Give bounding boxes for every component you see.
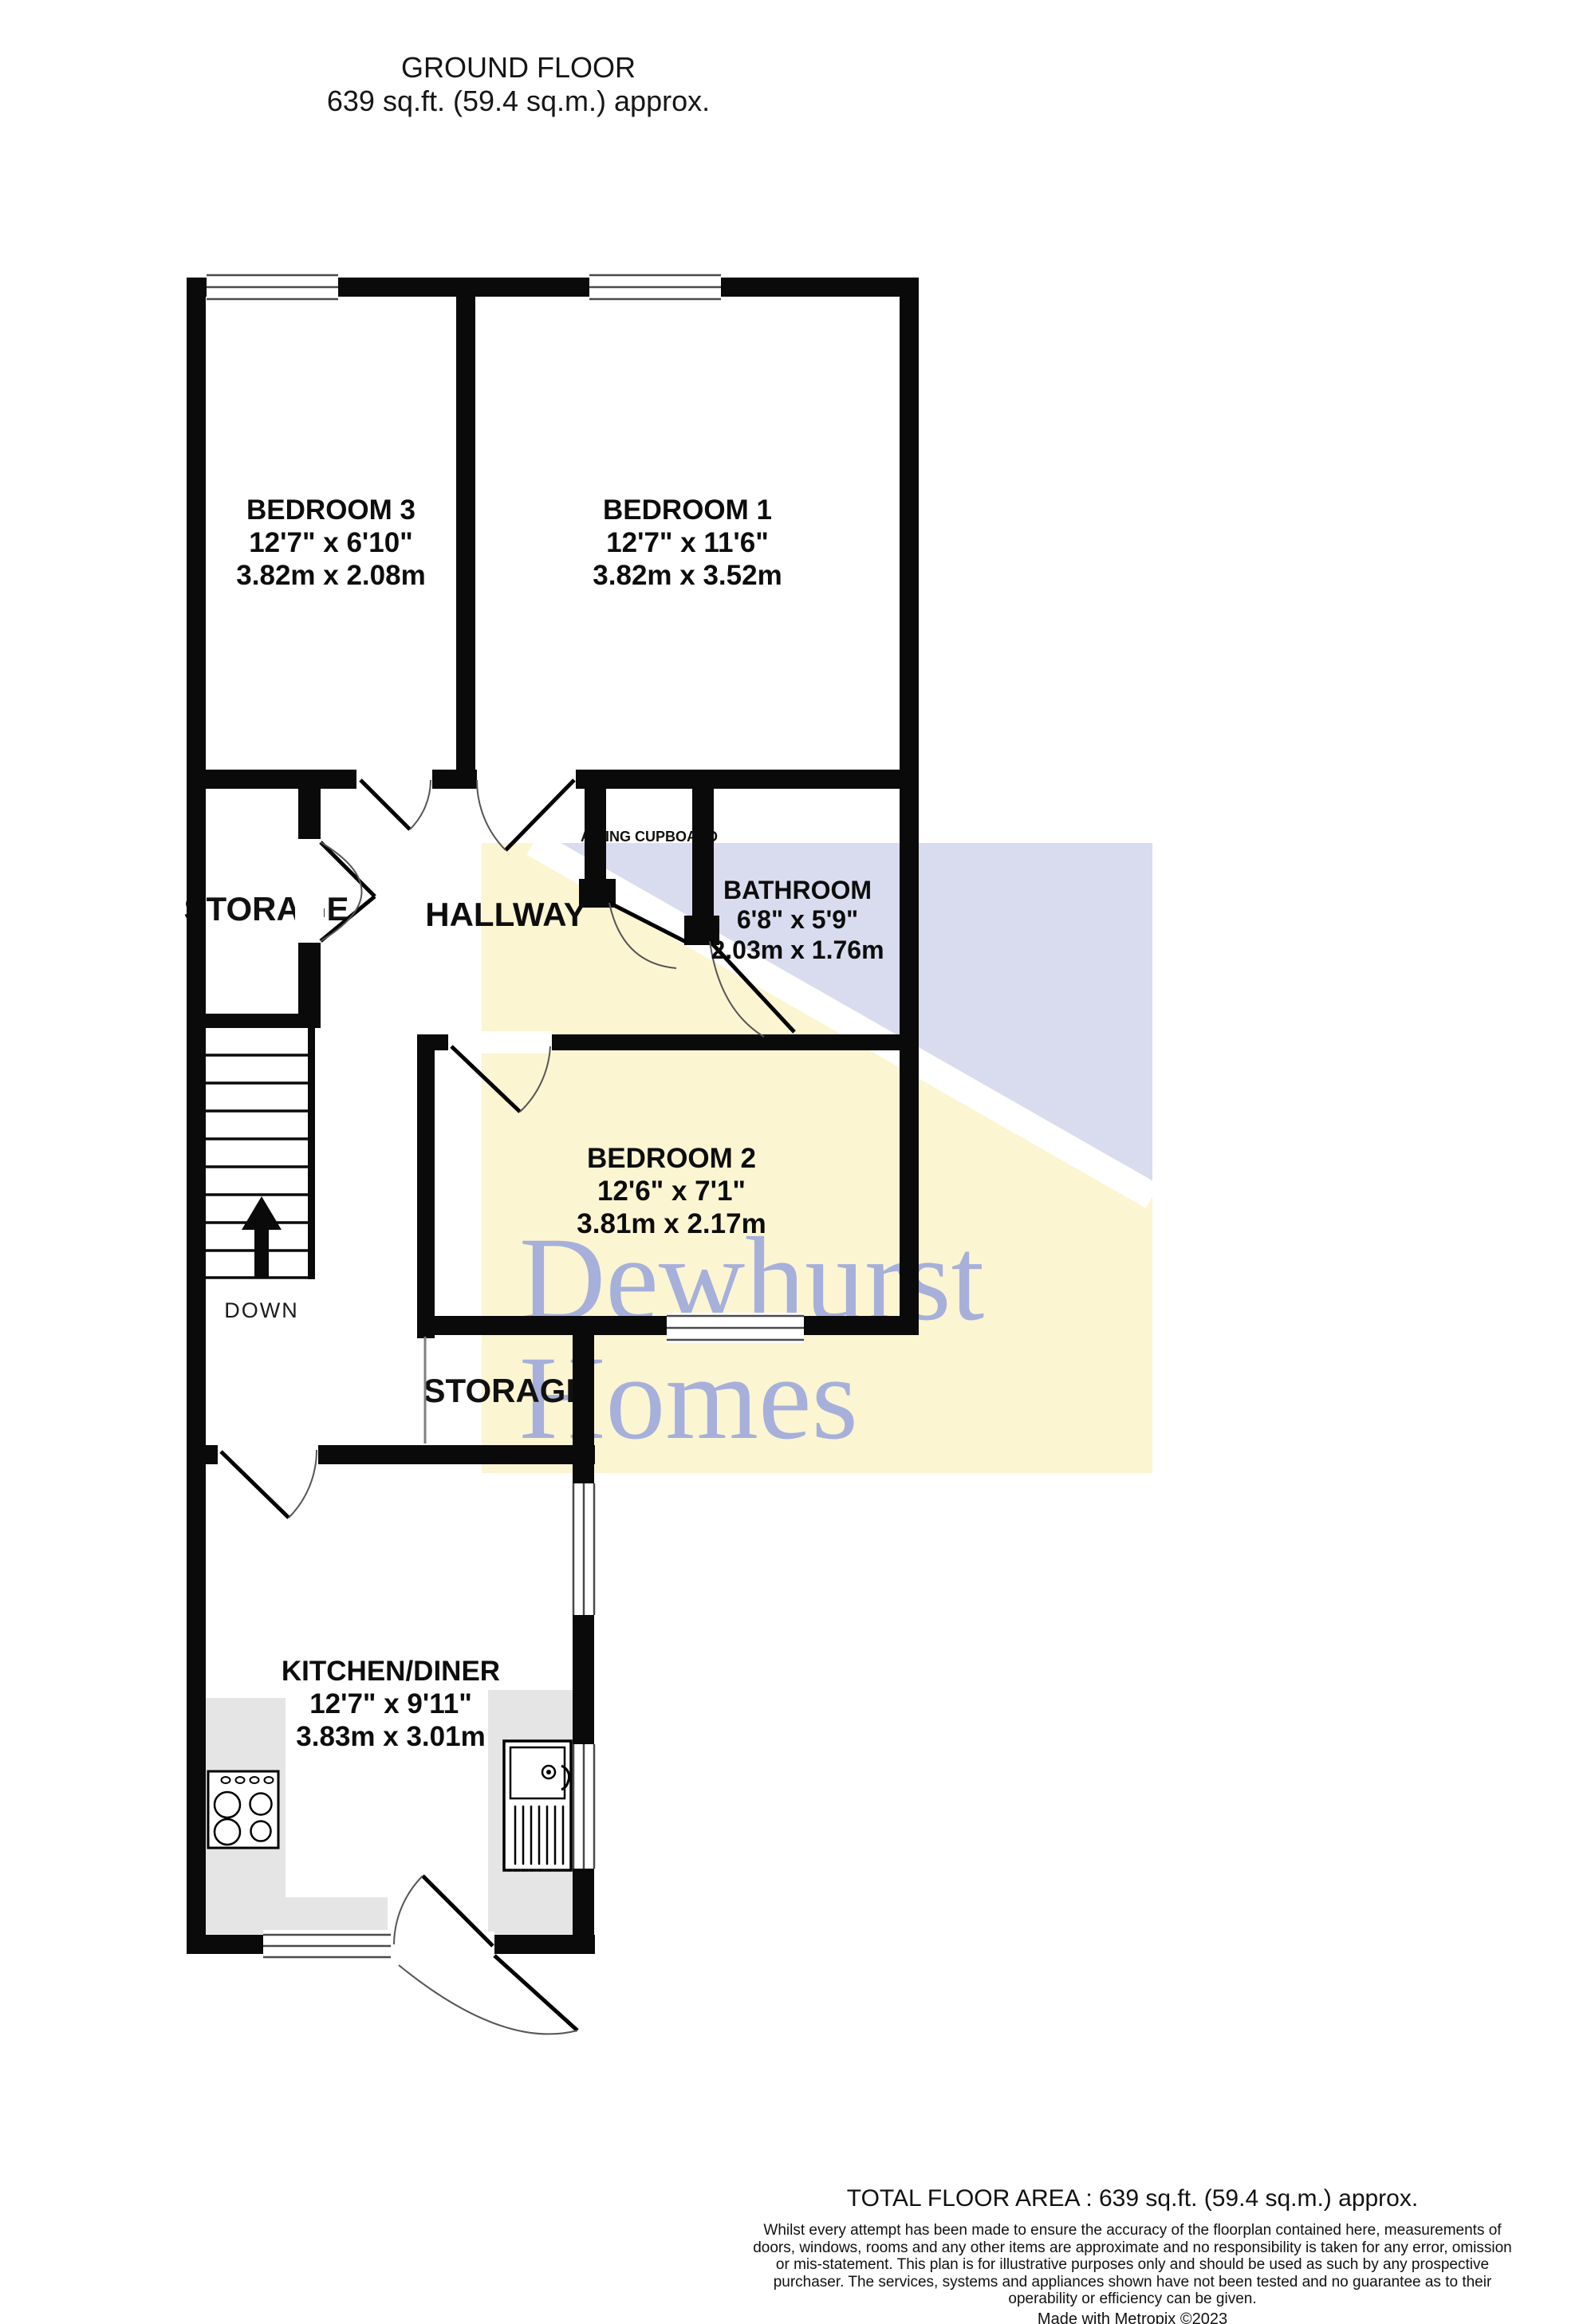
kitchen-patio-door-leaf-out: [494, 1956, 577, 2031]
window-kitchen-bottom: [263, 1930, 391, 1962]
storage-upper-door-leaf2: [321, 896, 375, 941]
disclaimer-text: Whilst every attempt has been made to en…: [746, 2222, 1519, 2308]
kitchen-imperial: 12'7" x 9'11": [271, 1688, 510, 1721]
storage-upper-door-leaf: [321, 842, 375, 896]
window-kitchen-right-lower: [569, 1744, 598, 1869]
stairs-down-label: DOWN: [202, 1298, 321, 1323]
bathroom-label: BATHROOM 6'8" x 5'9" 2.03m x 1.76m: [678, 876, 917, 965]
window-bedroom2-bottom: [667, 1313, 804, 1343]
bedroom2-door-leaf: [451, 1046, 520, 1112]
bedroom1-label: BEDROOM 1 12'7" x 11'6" 3.82m x 3.52m: [568, 494, 807, 593]
bedroom2-metric: 3.81m x 2.17m: [552, 1208, 791, 1241]
bathroom-metric: 2.03m x 1.76m: [678, 936, 917, 965]
sink-icon: [504, 1741, 571, 1870]
window-kitchen-right-upper: [569, 1483, 598, 1615]
window-bedroom3-top: [207, 273, 338, 301]
plan-title: GROUND FLOOR 639 sq.ft. (59.4 sq.m.) app…: [279, 51, 758, 118]
bathroom-name: BATHROOM: [678, 876, 917, 905]
floorplan-page: Dewhurst Homes STORAGE STORAGE AIRING CU…: [0, 0, 1595, 2324]
plan-title-line: GROUND FLOOR: [279, 51, 758, 85]
bathroom-imperial: 6'8" x 5'9": [678, 905, 917, 935]
floorplan-drawing: [0, 0, 1595, 2324]
storage-upper-door-arc: [321, 842, 362, 941]
plan-subtitle-line: 639 sq.ft. (59.4 sq.m.) approx.: [279, 85, 758, 118]
bedroom3-metric: 3.82m x 2.08m: [211, 560, 451, 593]
kitchen-label: KITCHEN/DINER 12'7" x 9'11" 3.83m x 3.01…: [271, 1656, 510, 1754]
bedroom1-imperial: 12'7" x 11'6": [568, 527, 807, 560]
window-bedroom1-top: [589, 273, 721, 301]
bedroom1-metric: 3.82m x 3.52m: [568, 560, 807, 593]
bedroom3-imperial: 12'7" x 6'10": [211, 527, 451, 560]
bedroom2-name: BEDROOM 2: [552, 1143, 791, 1176]
bedroom1-name: BEDROOM 1: [568, 494, 807, 527]
bedroom2-door-arc: [520, 1046, 550, 1112]
bedroom3-label: BEDROOM 3 12'7" x 6'10" 3.82m x 2.08m: [211, 494, 451, 593]
stove-icon: [208, 1771, 278, 1848]
kitchen-metric: 3.83m x 3.01m: [271, 1721, 510, 1754]
hallway-label: HALLWAY: [386, 895, 625, 934]
stairs: [206, 1014, 315, 1279]
metropix-credit: Made with Metropix ©2023: [746, 2310, 1519, 2324]
bedroom2-imperial: 12'6" x 7'1": [552, 1176, 791, 1208]
footer: TOTAL FLOOR AREA : 639 sq.ft. (59.4 sq.m…: [746, 2185, 1519, 2324]
total-floor-area: TOTAL FLOOR AREA : 639 sq.ft. (59.4 sq.m…: [746, 2185, 1519, 2212]
bedroom3-name: BEDROOM 3: [211, 494, 451, 527]
kitchen-patio-door-arc-out: [399, 1965, 577, 2034]
bedroom2-label: BEDROOM 2 12'6" x 7'1" 3.81m x 2.17m: [552, 1143, 791, 1241]
stairs-arrow-icon: [242, 1196, 282, 1278]
kitchen-name: KITCHEN/DINER: [271, 1656, 510, 1688]
hallway-name: HALLWAY: [425, 896, 585, 933]
